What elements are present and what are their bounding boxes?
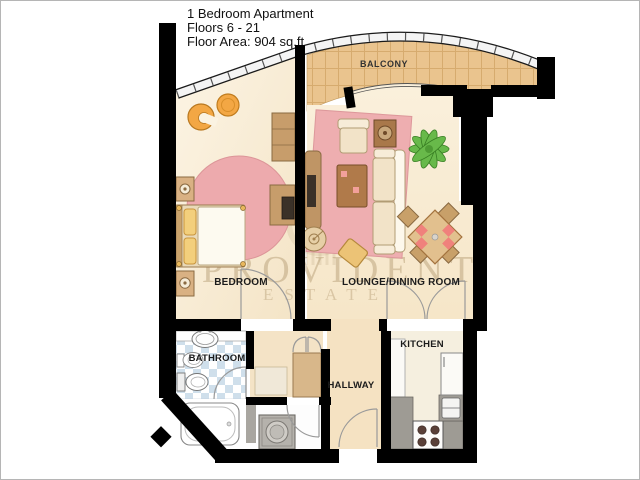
label-balcony: BALCONY — [360, 59, 408, 69]
coffee-table-icon — [337, 165, 367, 207]
label-bedroom: BEDROOM — [214, 277, 268, 288]
wall-vestibule-a — [246, 397, 287, 405]
nightstand-bottom-icon — [176, 271, 194, 296]
toilet-icon — [177, 373, 208, 391]
bed-icon — [176, 205, 246, 267]
dresser-tv-icon — [270, 185, 295, 225]
wall-bottom-right — [377, 449, 477, 463]
stove-icon — [413, 421, 443, 449]
tv-unit-icon — [305, 151, 321, 229]
pouf-icon — [217, 94, 239, 116]
wardrobe-icon — [272, 113, 295, 161]
wall-mid-horizontal-a — [176, 319, 241, 331]
plan-floors: Floors 6 - 21 — [187, 20, 260, 35]
wall-closet-right — [321, 349, 330, 449]
floorplan-image: 1 Bedroom Apartment Floors 6 - 21 Floor … — [0, 0, 640, 480]
wall-mid-horizontal-c — [379, 319, 387, 331]
round-side-table-icon — [302, 227, 326, 251]
label-kitchen: KITCHEN — [400, 339, 444, 350]
washing-machine-icon — [259, 415, 295, 449]
bath-partition — [246, 403, 256, 443]
wall-kitchen-right — [463, 319, 477, 463]
wall-balcony-bottom — [421, 85, 467, 96]
kitchen-counter-left — [389, 397, 413, 449]
wall-mid-horizontal-d — [465, 319, 477, 331]
wall-bottom-left — [215, 449, 339, 463]
armchair-icon — [338, 119, 369, 153]
label-hallway: HALLWAY — [328, 380, 375, 391]
plan-title: 1 Bedroom Apartment — [187, 6, 314, 21]
wall-diagonal-notch — [150, 426, 171, 447]
label-bathroom: BATHROOM — [189, 353, 246, 364]
plan-area: Floor Area: 904 sq.ft. — [187, 34, 308, 49]
closet-icon — [293, 353, 321, 397]
wall-lounge-right-lower — [473, 199, 487, 331]
sofa-icon — [373, 149, 405, 254]
floorplan-canvas: 1 Bedroom Apartment Floors 6 - 21 Floor … — [1, 1, 640, 480]
wall-hall-kitchen — [381, 331, 391, 449]
shoe-cabinet — [255, 367, 287, 395]
wall-left — [159, 23, 176, 398]
plan-header: 1 Bedroom Apartment Floors 6 - 21 Floor … — [187, 6, 314, 49]
wall-lounge-right-upper — [461, 93, 487, 205]
kitchen-sink-icon — [439, 395, 463, 421]
fridge-icon — [441, 353, 463, 395]
label-lounge: LOUNGE/DINING ROOM — [342, 277, 460, 288]
kitchen-counter-right-bottom — [443, 421, 463, 449]
speaker-table-icon — [374, 120, 396, 147]
nightstand-top-icon — [176, 177, 194, 201]
wall-mid-horizontal-b — [293, 319, 331, 331]
wall-top-right-connector — [491, 85, 547, 97]
wall-bathroom-right — [246, 331, 254, 369]
wall-bedroom-lounge — [295, 45, 305, 331]
